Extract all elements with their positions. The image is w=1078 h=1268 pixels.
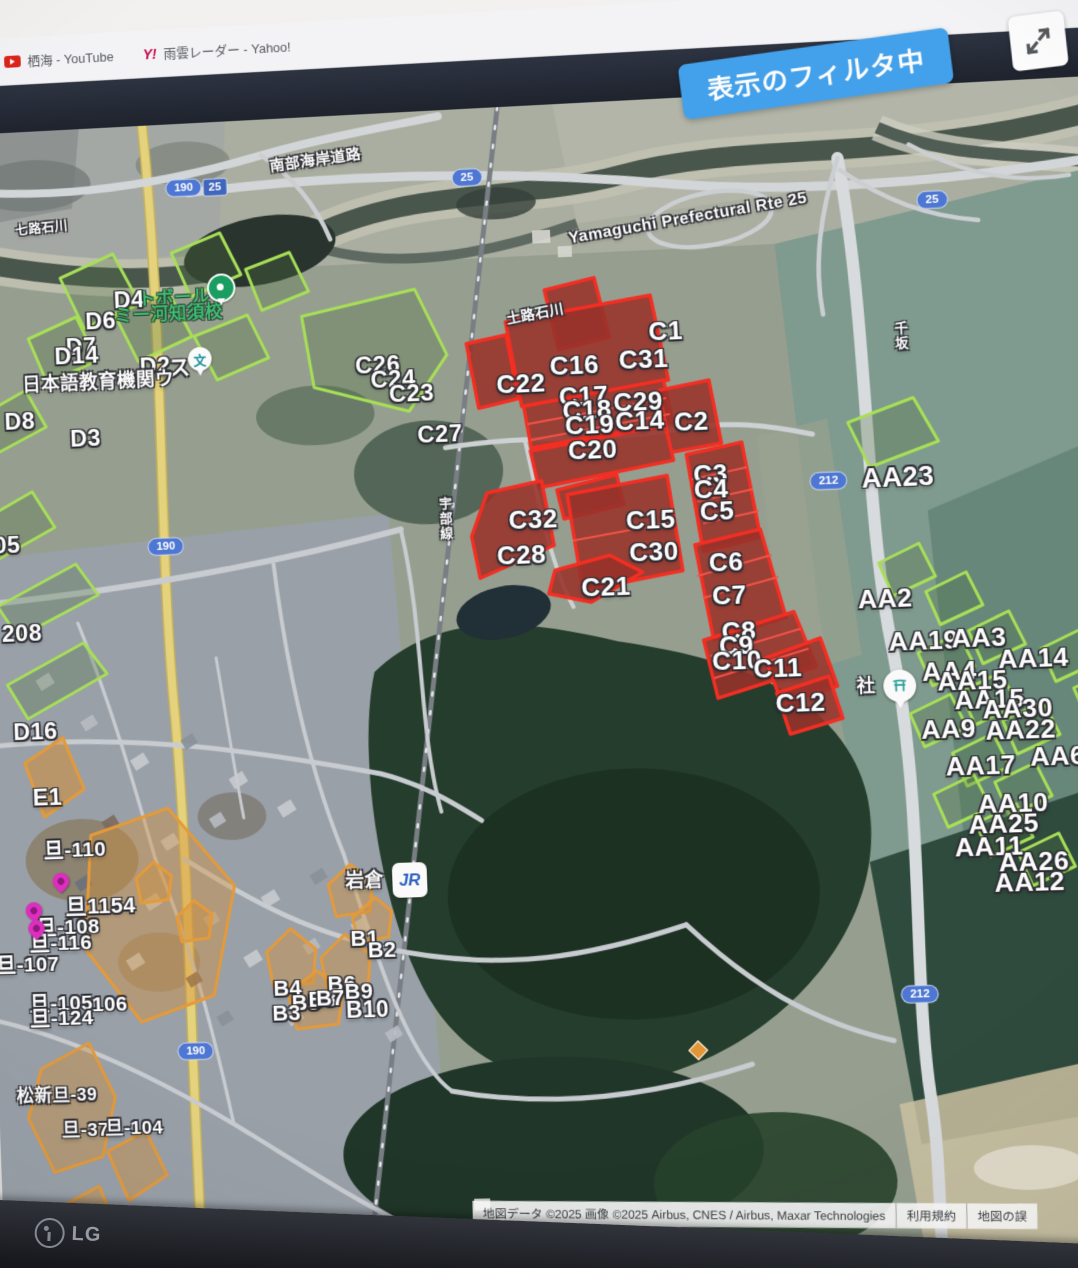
shrine-pin[interactable]: [883, 669, 917, 703]
jr-station-badge[interactable]: JR: [392, 862, 428, 898]
magenta-pin[interactable]: [49, 869, 72, 893]
terms-link[interactable]: 利用規約: [895, 1203, 966, 1229]
map-feedback-link[interactable]: 地図の誤: [966, 1203, 1037, 1229]
youtube-icon: [4, 55, 21, 68]
monitor-screen: 栖海 - YouTube Y! 雨雲レーダー - Yahoo!: [0, 0, 1078, 1268]
jr-logo: JR: [399, 870, 421, 891]
fullscreen-icon: [1021, 24, 1055, 58]
lg-logo: LG: [34, 1217, 102, 1250]
bookmark-yahoo[interactable]: Y! 雨雲レーダー - Yahoo!: [142, 36, 291, 63]
photo-frame: 栖海 - YouTube Y! 雨雲レーダー - Yahoo!: [0, 0, 1078, 1268]
magenta-pin[interactable]: [25, 917, 48, 941]
moji-pin[interactable]: 文: [188, 346, 212, 371]
lg-logo-text: LG: [71, 1222, 102, 1246]
bookmark-label: 栖海 - YouTube: [27, 46, 114, 69]
map-markers-layer: 文 JR: [0, 75, 1078, 1268]
orange-diamond-marker[interactable]: [688, 1040, 708, 1060]
school-pin[interactable]: [206, 273, 236, 303]
bookmark-youtube[interactable]: 栖海 - YouTube: [4, 46, 114, 71]
moji-glyph: 文: [193, 349, 206, 368]
torii-icon: [890, 676, 909, 695]
lg-logo-mark: [34, 1217, 65, 1248]
yahoo-icon: Y!: [143, 45, 157, 62]
fullscreen-button[interactable]: [1007, 10, 1068, 71]
map-canvas[interactable]: C1C22C16C31C17C18C29C19C14C2C20C3C4C5C32…: [0, 75, 1078, 1268]
bookmark-label: 雨雲レーダー - Yahoo!: [163, 36, 291, 62]
